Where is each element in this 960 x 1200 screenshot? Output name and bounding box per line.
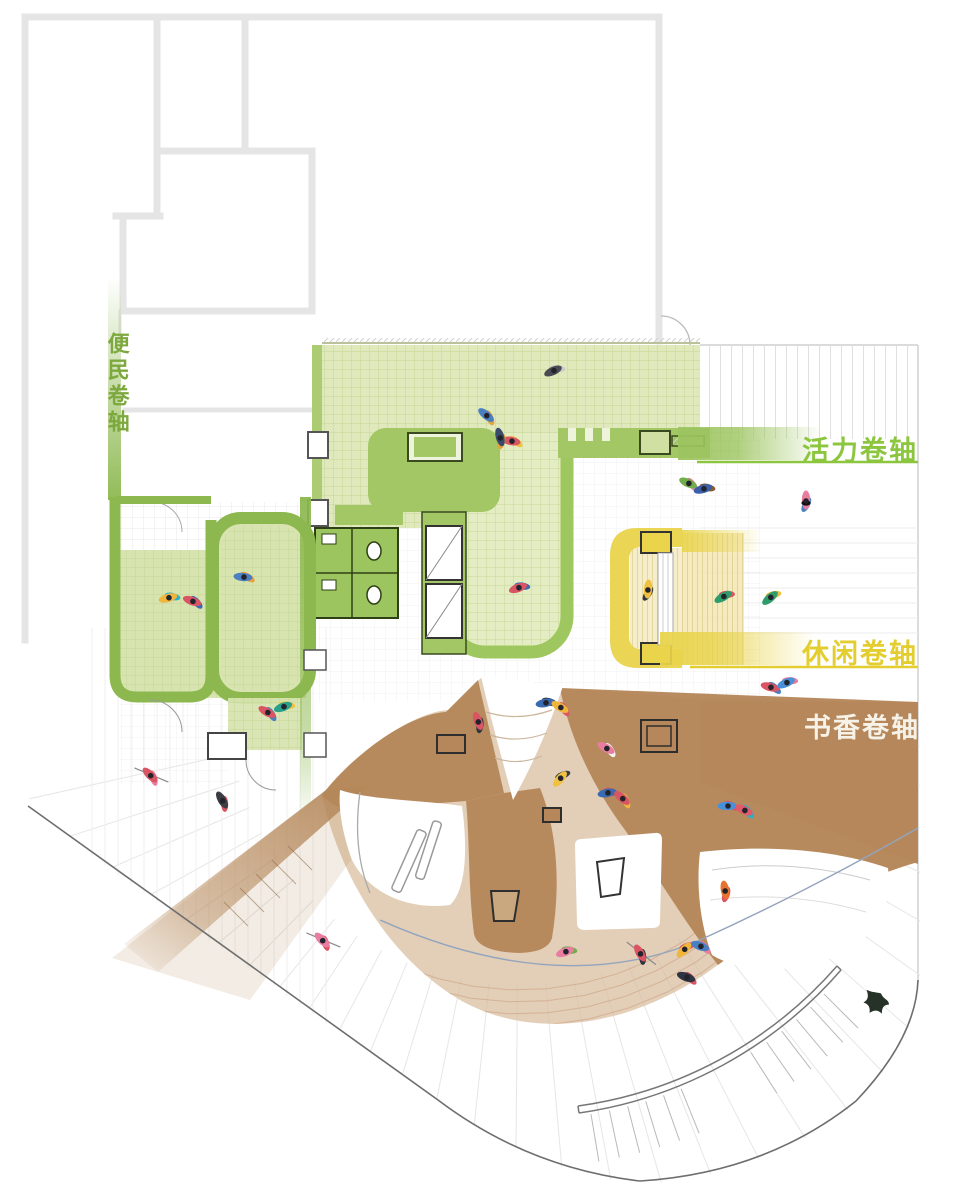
person-figure bbox=[799, 491, 813, 514]
label-shuxiang-juanzhou: 书香卷轴 bbox=[804, 706, 920, 745]
floor-plan-svg bbox=[0, 0, 960, 1200]
label-xiuxian-juanzhou: 休闲卷轴 bbox=[802, 632, 918, 671]
label-huoli-juanzhou: 活力卷轴 bbox=[802, 429, 918, 468]
floor-plan-page: 便民卷轴 活力卷轴 休闲卷轴 书香卷轴 bbox=[0, 0, 960, 1200]
person-figure bbox=[306, 923, 340, 957]
label-bianmin-juanzhou: 便民卷轴 bbox=[104, 332, 129, 436]
tree-icon bbox=[860, 989, 892, 1018]
person-figure bbox=[212, 788, 235, 815]
